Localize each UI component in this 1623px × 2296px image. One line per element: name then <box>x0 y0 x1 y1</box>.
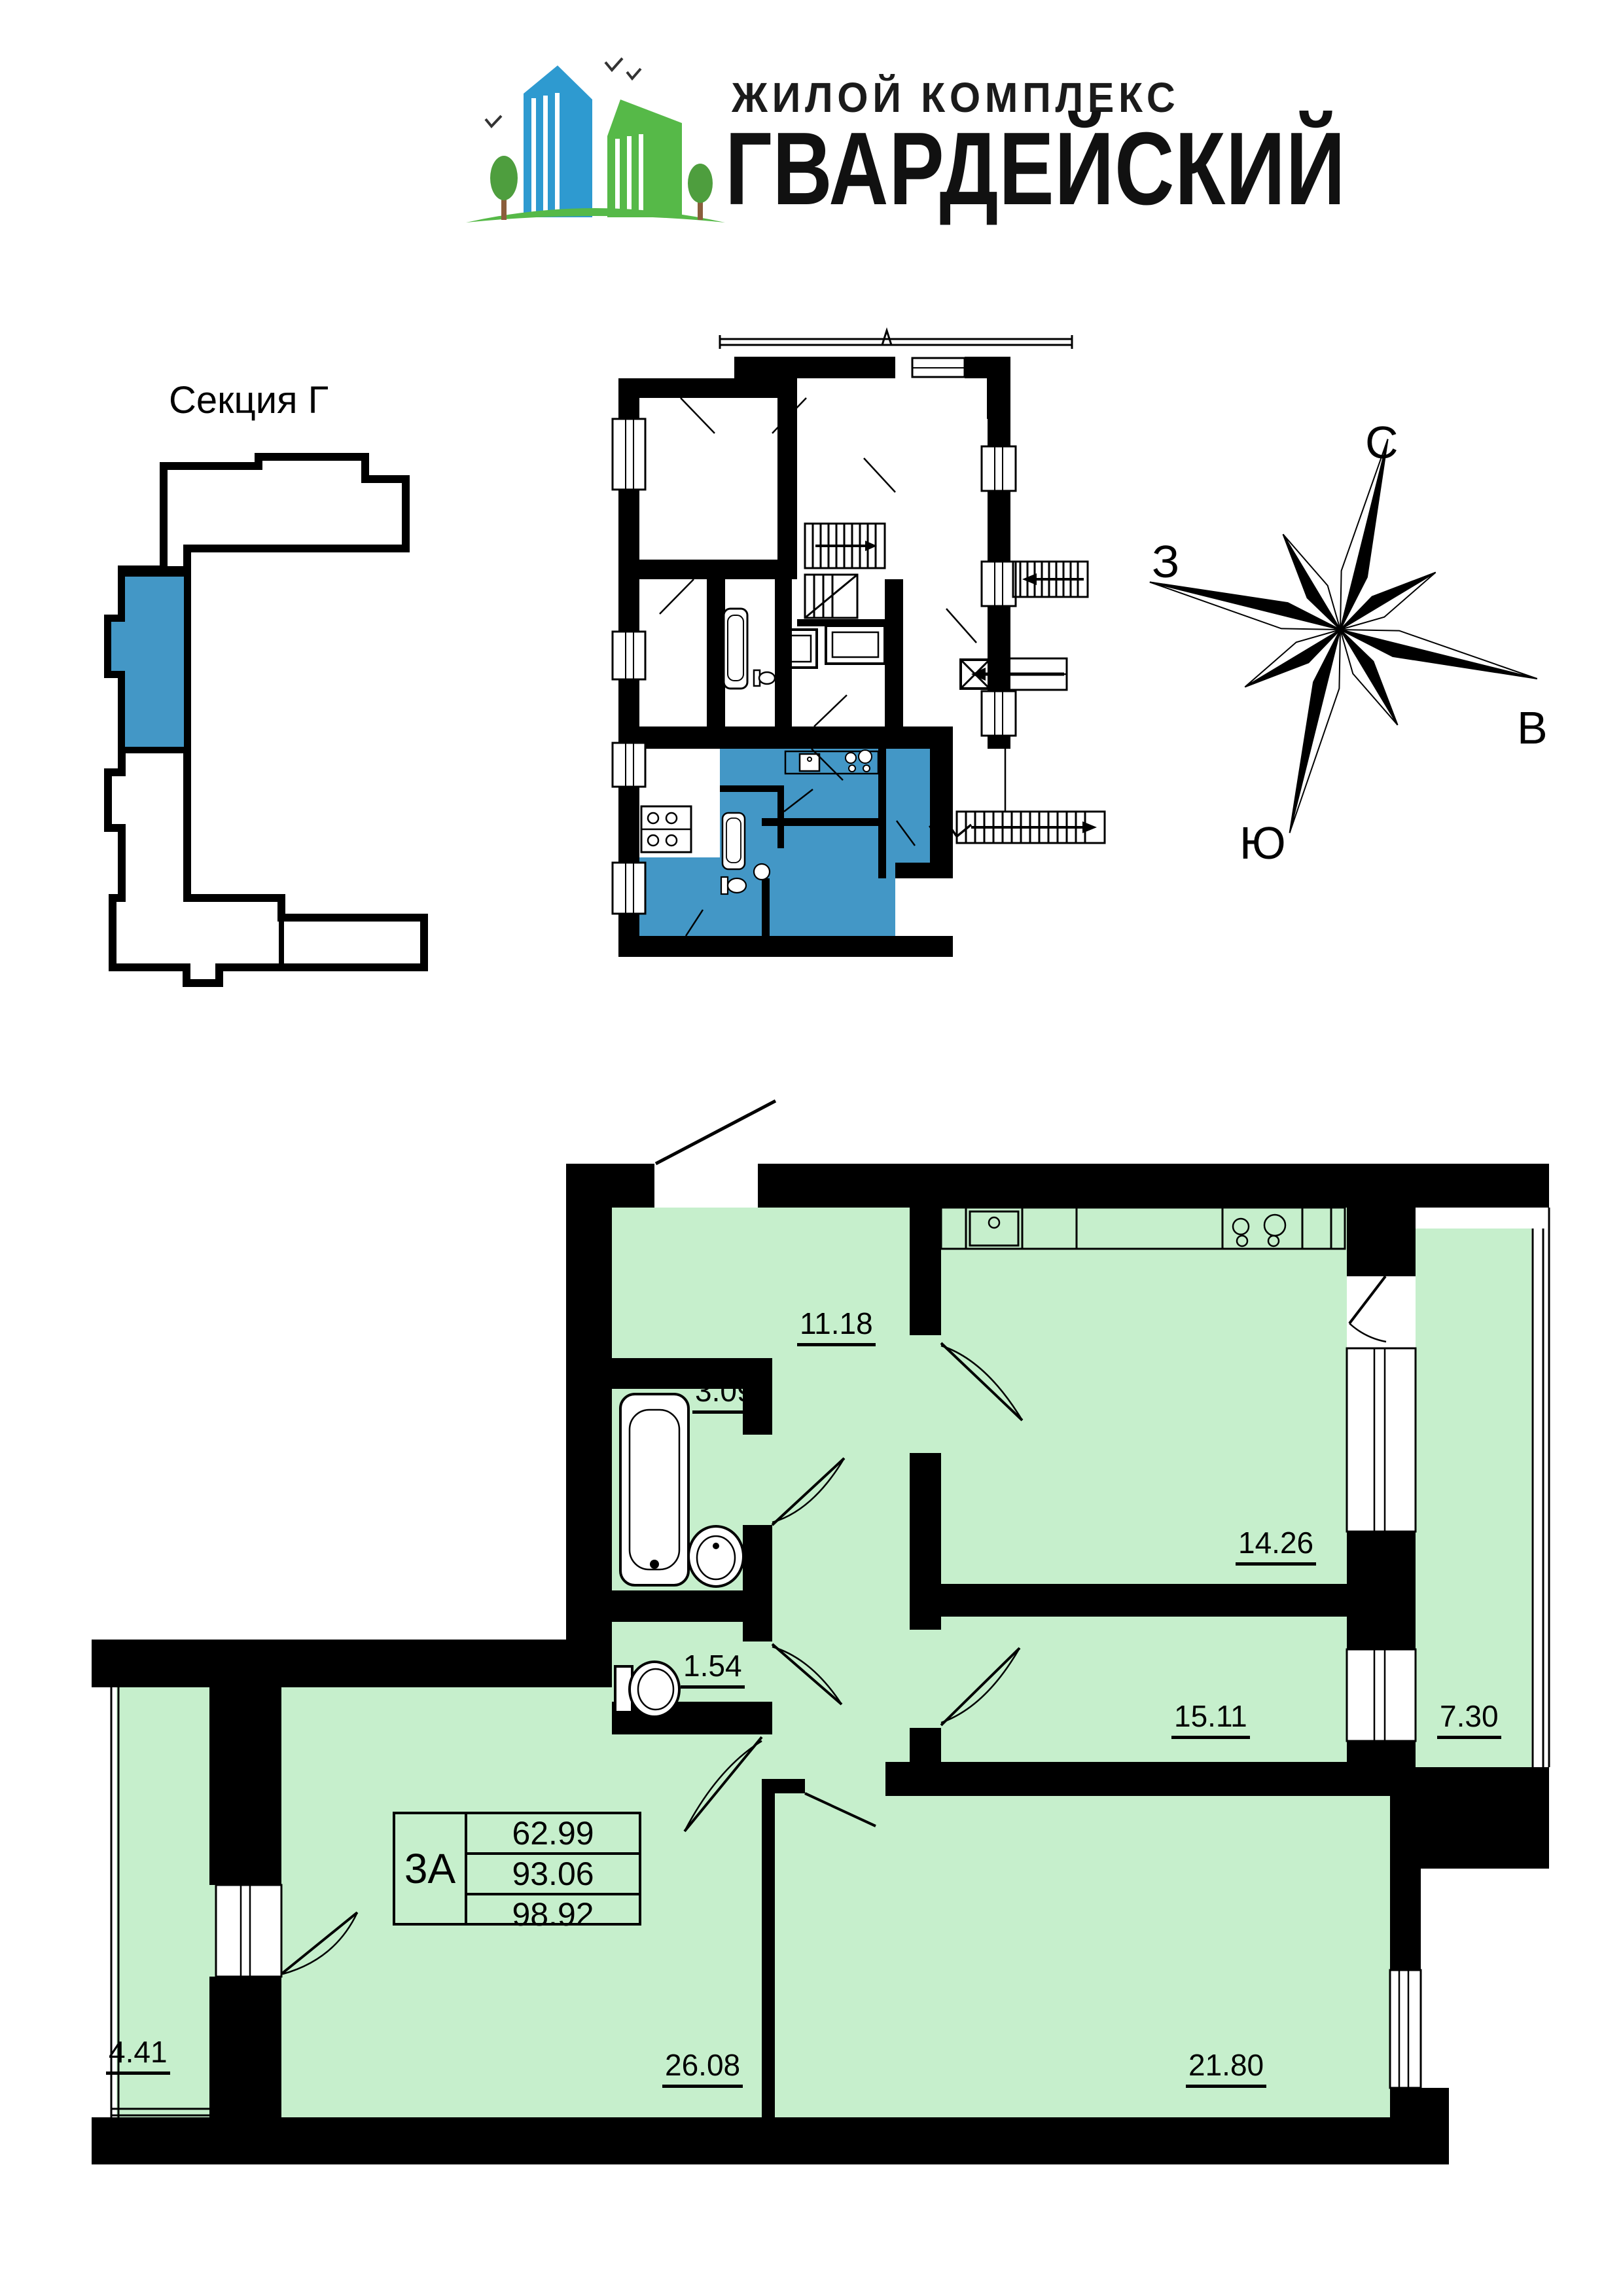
apartment-type: 3А <box>395 1814 467 1923</box>
bathtub-icon <box>620 1394 688 1585</box>
elevator-icon <box>783 626 885 668</box>
compass-east-label: В <box>1517 702 1548 754</box>
section-floor-plan <box>613 331 1105 957</box>
complex-title: ГВАРДЕЙСКИЙ <box>725 110 1346 228</box>
apartment-living-area: 62.99 <box>467 1814 639 1855</box>
room-label-bath: 3.09 <box>692 1373 757 1414</box>
canopy-lines <box>720 331 1072 349</box>
room-label-kitchen: 14.26 <box>1236 1525 1316 1566</box>
entrance-door-line <box>656 1101 776 1164</box>
balcony-right-glazing <box>1533 1208 1549 1767</box>
room-label-balcony-right: 7.30 <box>1437 1698 1501 1739</box>
apartment-area: 93.06 <box>467 1855 639 1895</box>
page: ЖИЛОЙ КОМПЛЕКС ГВАРДЕЙСКИЙ Секция Г С З … <box>0 0 1623 2296</box>
entrance-gap <box>654 1164 758 1208</box>
exterior-stair-top <box>1013 562 1088 597</box>
room-label-balcony-left: 4.41 <box>106 2034 170 2075</box>
room-label-wc: 1.54 <box>681 1648 745 1689</box>
room-label-bedroom2: 21.80 <box>1186 2047 1266 2088</box>
exterior-stair-bottom <box>929 749 1105 843</box>
entrance-right <box>961 658 1067 690</box>
washbasin-icon <box>688 1526 743 1587</box>
apartment-areas: 62.99 93.06 98.92 <box>467 1814 639 1923</box>
compass-south-label: Ю <box>1240 817 1286 869</box>
apartment-total-area: 98.92 <box>467 1895 639 1933</box>
room-label-hall: 11.18 <box>797 1306 876 1346</box>
section-label: Секция Г <box>169 378 329 422</box>
artwork-layer <box>0 0 1623 2296</box>
compass-west-label: З <box>1152 535 1179 588</box>
room-label-living: 26.08 <box>662 2047 743 2088</box>
apartment-info-table: 3А 62.99 93.06 98.92 <box>393 1812 641 1926</box>
section-highlight <box>108 573 187 750</box>
apartment-plan <box>92 1101 1549 2164</box>
logo-graphic <box>466 58 725 223</box>
toilet-icon <box>615 1662 679 1717</box>
section-map-shape <box>108 457 424 983</box>
compass-rose <box>1150 439 1537 833</box>
room-label-bedroom1: 15.11 <box>1171 1698 1250 1739</box>
stairs-icon <box>805 524 885 618</box>
compass-north-label: С <box>1365 416 1399 469</box>
